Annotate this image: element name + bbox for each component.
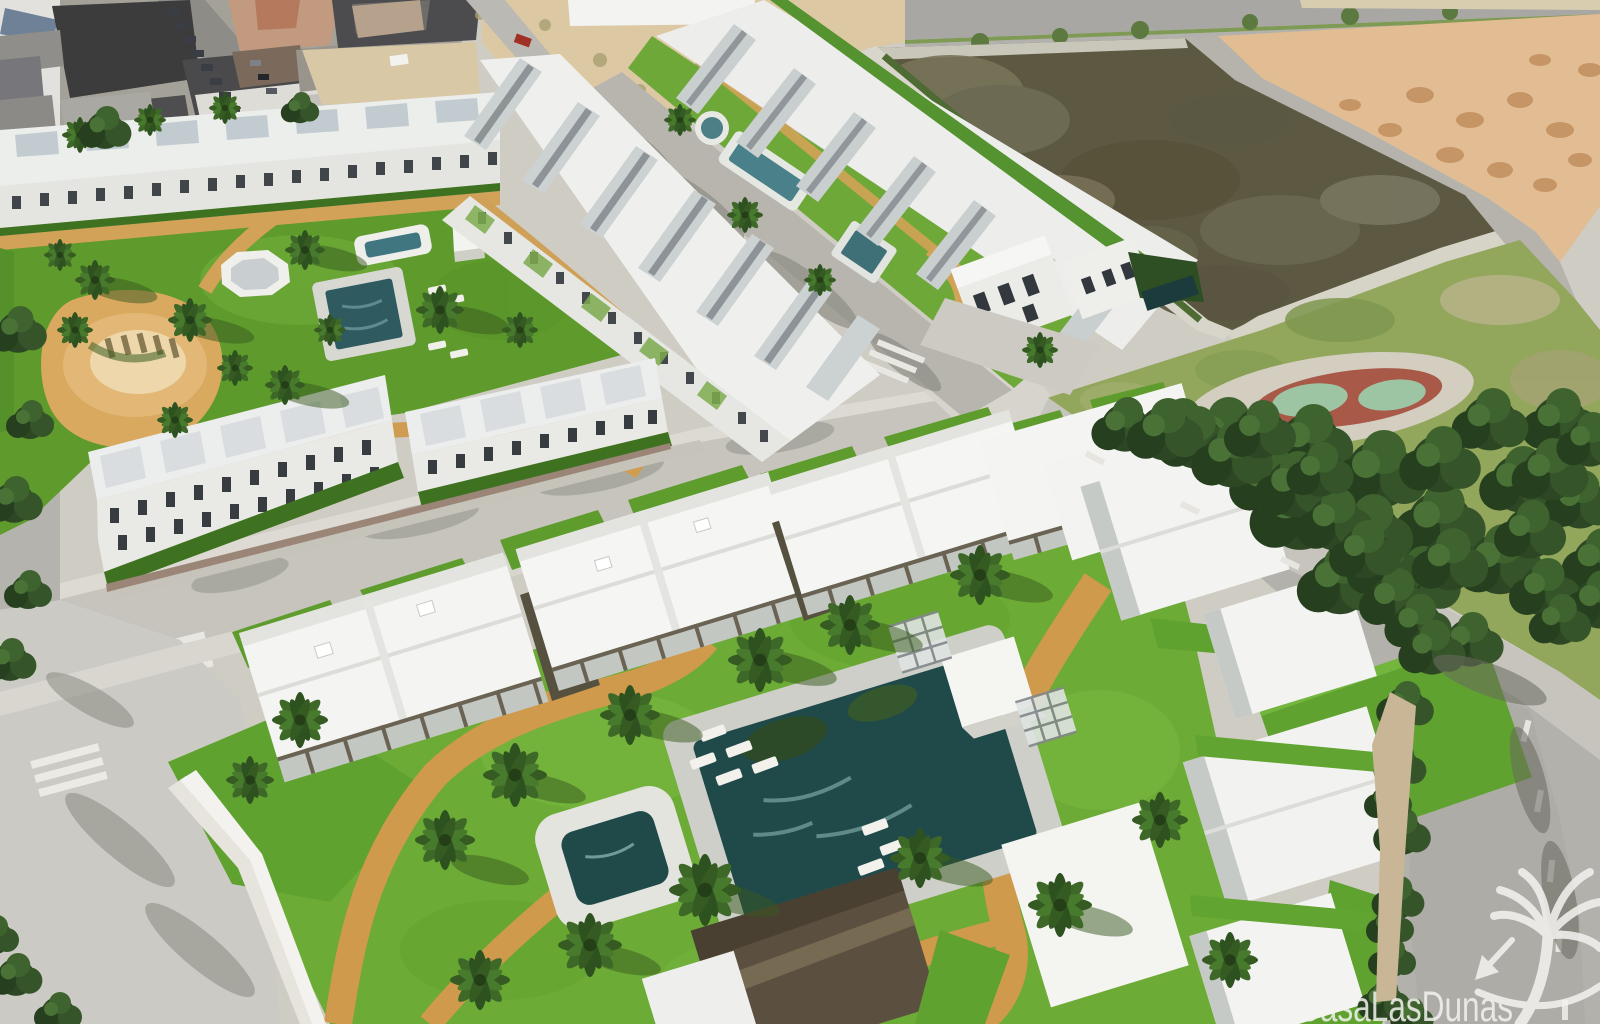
svg-text:CasaLasDunas: CasaLasDunas (1297, 983, 1513, 1024)
